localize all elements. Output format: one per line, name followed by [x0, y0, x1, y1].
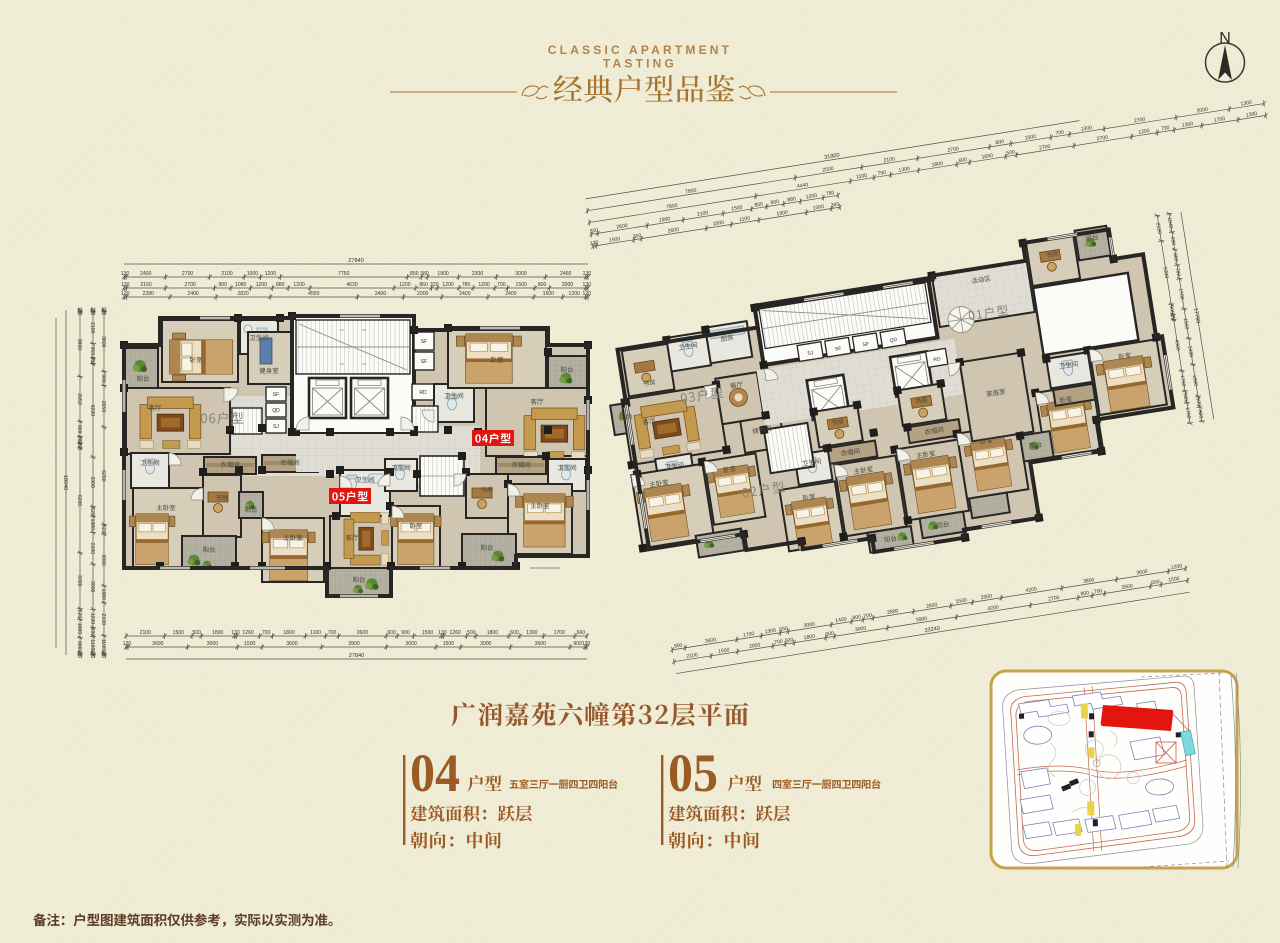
svg-text:950: 950 — [89, 347, 95, 356]
svg-text:130: 130 — [583, 282, 592, 288]
svg-text:3300: 3300 — [100, 554, 106, 565]
svg-text:130: 130 — [76, 650, 82, 659]
svg-text:2100: 2100 — [140, 630, 151, 636]
svg-text:660: 660 — [577, 630, 586, 636]
svg-text:1200: 1200 — [293, 282, 304, 288]
svg-text:3000: 3000 — [515, 271, 526, 277]
svg-text:120: 120 — [100, 307, 106, 316]
svg-text:900: 900 — [100, 374, 106, 383]
svg-text:700: 700 — [497, 282, 506, 288]
svg-text:2100: 2100 — [89, 543, 95, 554]
svg-text:3000: 3000 — [89, 581, 95, 592]
svg-text:1200: 1200 — [399, 282, 410, 288]
svg-text:6200: 6200 — [76, 495, 82, 506]
svg-text:4630: 4630 — [346, 282, 357, 288]
svg-text:900: 900 — [76, 641, 82, 650]
svg-text:600: 600 — [89, 628, 95, 637]
svg-text:130: 130 — [583, 271, 592, 277]
svg-text:1200: 1200 — [478, 282, 489, 288]
svg-text:1500: 1500 — [443, 641, 454, 647]
svg-text:3300: 3300 — [89, 476, 95, 487]
svg-text:600: 600 — [510, 630, 519, 636]
svg-text:1200: 1200 — [442, 282, 453, 288]
svg-text:QD: QD — [272, 408, 280, 414]
svg-text:SF: SF — [862, 341, 869, 348]
svg-text:2280: 2280 — [143, 291, 154, 297]
svg-text:780: 780 — [462, 282, 471, 288]
svg-text:1080: 1080 — [89, 519, 95, 530]
svg-text:620: 620 — [89, 507, 95, 516]
svg-text:900: 900 — [573, 641, 582, 647]
svg-text:3000: 3000 — [405, 641, 416, 647]
svg-text:05: 05 — [668, 743, 718, 803]
svg-text:2400: 2400 — [140, 271, 151, 277]
svg-text:2700: 2700 — [182, 271, 193, 277]
svg-text:RD: RD — [419, 390, 427, 396]
svg-text:1900: 1900 — [437, 271, 448, 277]
svg-text:6200: 6200 — [100, 470, 106, 481]
svg-text:380: 380 — [420, 271, 429, 277]
svg-text:2100: 2100 — [221, 271, 232, 277]
svg-text:900: 900 — [401, 630, 410, 636]
svg-text:3600: 3600 — [286, 641, 297, 647]
svg-text:130: 130 — [100, 650, 106, 659]
svg-text:SF: SF — [421, 339, 427, 345]
svg-text:700: 700 — [328, 630, 337, 636]
svg-text:1500: 1500 — [516, 282, 527, 288]
svg-text:500: 500 — [467, 630, 476, 636]
svg-text:1260: 1260 — [450, 630, 461, 636]
svg-text:27840: 27840 — [349, 653, 365, 659]
svg-text:2700: 2700 — [184, 282, 195, 288]
svg-text:880: 880 — [276, 282, 285, 288]
svg-text:18040: 18040 — [62, 475, 68, 491]
svg-text:1500: 1500 — [244, 641, 255, 647]
svg-text:3800: 3800 — [100, 336, 106, 347]
svg-text:1500: 1500 — [173, 630, 184, 636]
svg-text:27840: 27840 — [348, 258, 364, 264]
svg-text:130: 130 — [121, 282, 130, 288]
svg-text:CLASSIC APARTMENT: CLASSIC APARTMENT — [548, 43, 732, 57]
svg-text:2160: 2160 — [140, 282, 151, 288]
svg-text:800: 800 — [538, 282, 547, 288]
svg-text:TASTING: TASTING — [603, 57, 677, 71]
svg-text:620: 620 — [76, 610, 82, 619]
svg-text:1100: 1100 — [100, 639, 106, 650]
svg-text:600: 600 — [387, 630, 396, 636]
svg-text:860: 860 — [419, 282, 428, 288]
svg-text:1700: 1700 — [554, 630, 565, 636]
svg-text:1080: 1080 — [100, 589, 106, 600]
svg-text:3800: 3800 — [76, 339, 82, 350]
svg-text:130: 130 — [121, 271, 130, 277]
svg-text:QD: QD — [889, 337, 898, 344]
svg-text:2400: 2400 — [187, 291, 198, 297]
svg-text:4550: 4550 — [308, 291, 319, 297]
svg-text:3600: 3600 — [535, 641, 546, 647]
svg-text:N: N — [1219, 30, 1231, 47]
svg-text:1300: 1300 — [526, 630, 537, 636]
svg-text:120: 120 — [582, 641, 591, 647]
svg-text:1500: 1500 — [543, 291, 554, 297]
svg-text:130: 130 — [89, 307, 95, 316]
svg-text:1800: 1800 — [487, 630, 498, 636]
svg-text:850: 850 — [410, 271, 419, 277]
svg-text:2400: 2400 — [459, 291, 470, 297]
svg-text:SF: SF — [421, 359, 427, 365]
svg-text:2000: 2000 — [417, 291, 428, 297]
svg-text:900: 900 — [76, 425, 82, 434]
svg-text:7750: 7750 — [338, 271, 349, 277]
svg-text:130: 130 — [89, 650, 95, 659]
svg-text:3300: 3300 — [76, 575, 82, 586]
svg-text:3600: 3600 — [152, 641, 163, 647]
svg-text:1260: 1260 — [242, 630, 253, 636]
svg-text:1200: 1200 — [89, 613, 95, 624]
svg-text:1200: 1200 — [265, 271, 276, 277]
svg-text:2460: 2460 — [560, 271, 571, 277]
svg-text:120: 120 — [121, 291, 130, 297]
svg-text:700: 700 — [262, 630, 271, 636]
svg-text:2300: 2300 — [472, 271, 483, 277]
svg-text:6200: 6200 — [89, 405, 95, 416]
svg-text:130: 130 — [438, 630, 447, 636]
svg-text:1200: 1200 — [569, 291, 580, 297]
svg-text:1500: 1500 — [422, 630, 433, 636]
svg-text:2820: 2820 — [237, 291, 248, 297]
svg-text:3900: 3900 — [348, 641, 359, 647]
svg-text:2650: 2650 — [100, 401, 106, 412]
svg-text:RD: RD — [933, 356, 941, 363]
svg-text:130: 130 — [76, 307, 82, 316]
svg-text:2650: 2650 — [76, 393, 82, 404]
svg-text:2400: 2400 — [505, 291, 516, 297]
svg-text:280: 280 — [76, 441, 82, 450]
svg-text:SF: SF — [835, 346, 842, 353]
svg-text:1080: 1080 — [235, 282, 246, 288]
svg-text:2100: 2100 — [100, 614, 106, 625]
svg-text:900: 900 — [218, 282, 227, 288]
svg-text:620: 620 — [100, 525, 106, 534]
svg-text:130: 130 — [231, 630, 240, 636]
svg-text:SF: SF — [273, 392, 279, 398]
svg-text:320: 320 — [430, 282, 439, 288]
svg-text:1200: 1200 — [256, 282, 267, 288]
svg-text:120: 120 — [583, 291, 592, 297]
svg-text:1080: 1080 — [76, 623, 82, 634]
svg-text:1800: 1800 — [212, 630, 223, 636]
svg-text:3000: 3000 — [207, 641, 218, 647]
svg-text:1100: 1100 — [310, 630, 321, 636]
svg-text:500: 500 — [192, 630, 201, 636]
svg-text:SJ: SJ — [273, 424, 279, 430]
svg-text:1000: 1000 — [247, 271, 258, 277]
svg-text:1800: 1800 — [283, 630, 294, 636]
svg-text:380: 380 — [89, 357, 95, 366]
svg-text:2000: 2000 — [562, 282, 573, 288]
svg-text:2400: 2400 — [375, 291, 386, 297]
svg-text:120: 120 — [123, 641, 132, 647]
svg-text:2600: 2600 — [357, 630, 368, 636]
svg-text:2100: 2100 — [89, 322, 95, 333]
svg-text:3000: 3000 — [480, 641, 491, 647]
svg-text:04: 04 — [410, 743, 460, 803]
